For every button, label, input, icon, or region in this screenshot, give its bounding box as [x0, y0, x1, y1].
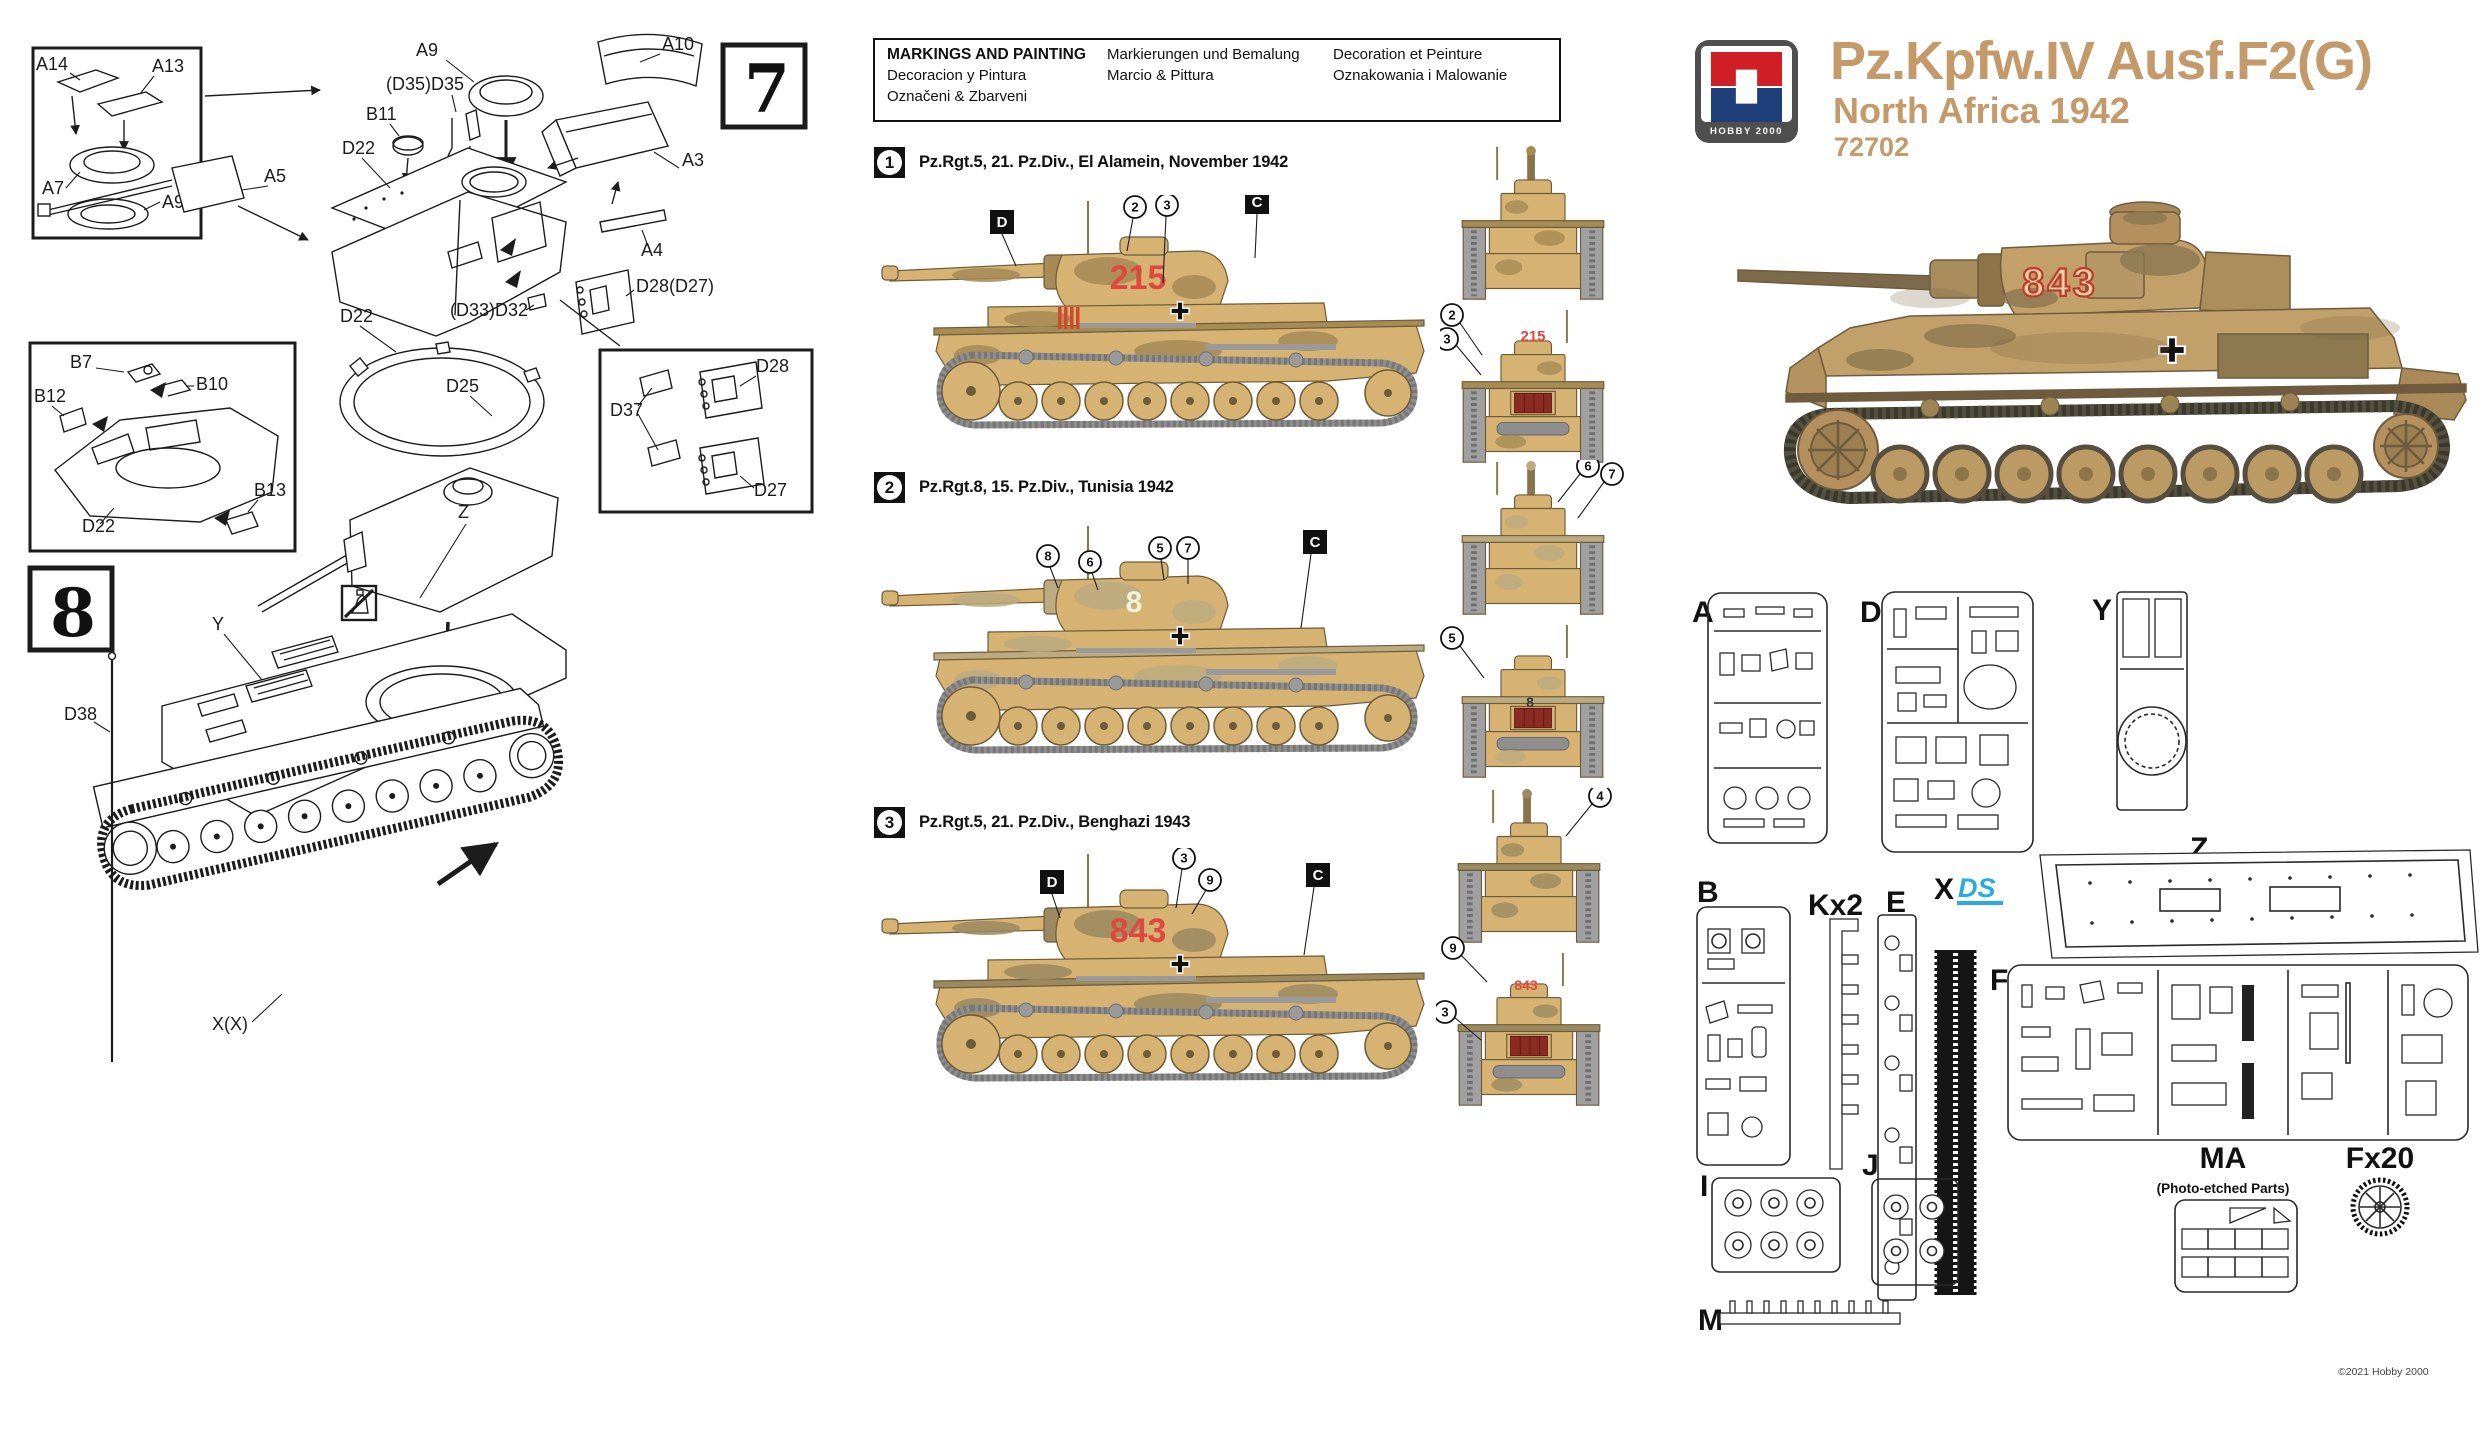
scheme3-callout-c: C — [1304, 863, 1330, 955]
svg-text:7: 7 — [1184, 541, 1191, 556]
part-label-d22-roof: D22 — [342, 138, 375, 158]
sprue-label-m: M — [1698, 1304, 1723, 1337]
part-label-a9: A9 — [416, 40, 438, 60]
step7-number-text: 7 — [744, 50, 790, 128]
svg-text:D: D — [1047, 874, 1058, 891]
part-label-d35: (D35)D35 — [386, 74, 464, 94]
svg-text:5: 5 — [1156, 541, 1163, 556]
hobby2000-logo: HOBBY 2000 — [1695, 40, 1798, 143]
svg-text:9: 9 — [1449, 941, 1456, 956]
scheme3-rear-callout-9: 9 — [1442, 937, 1487, 982]
sprue-d — [1882, 592, 2033, 852]
markings-title-es: Decoracion y Pintura — [887, 67, 1026, 84]
sprue-label-d: D — [1860, 596, 1882, 629]
part-label-d28: D28 — [756, 356, 789, 376]
part-label-a14: A14 — [36, 54, 68, 74]
runner-m — [1720, 1301, 1900, 1324]
step7-hatch-inset: D37 D28 D27 — [600, 350, 812, 512]
scheme1-front-rear-views: 2 3 215 — [1440, 145, 1630, 470]
part-label-a10: A10 — [662, 34, 694, 54]
markings-header-box: MARKINGS AND PAINTING Decoracion y Pintu… — [873, 38, 1561, 122]
scheme3-turret-number: 843 — [1110, 912, 1167, 950]
sprue-label-k: Kx2 — [1808, 889, 1863, 922]
part-label-d25: D25 — [446, 376, 479, 396]
sprue-label-f: F — [1990, 964, 2008, 997]
color-profile-illustration: 843 — [1730, 168, 2481, 526]
instruction-sheet: 7 A14 A13 A7 A9 — [0, 0, 2481, 1447]
scheme1-rear-callout-3: 3 — [1440, 328, 1481, 375]
track-runs-x — [1937, 950, 1974, 1295]
scheme1-callout-c: C — [1245, 195, 1269, 258]
profile-turret-number: 843 — [2022, 261, 2098, 305]
sprue-label-ma-note: (Photo-etched Parts) — [2157, 1181, 2290, 1196]
step8-number: 8 — [30, 568, 112, 652]
sprue-label-i: I — [1700, 1170, 1708, 1203]
part-label-b11: B11 — [366, 104, 397, 124]
sprue-label-ma: MA — [2200, 1142, 2247, 1175]
scheme3-front-callout-4: 4 — [1566, 788, 1611, 836]
svg-text:3: 3 — [1180, 851, 1187, 866]
part-label-a5: A5 — [264, 166, 286, 186]
svg-text:8: 8 — [1044, 549, 1051, 564]
scheme3-rear-callout-3: 3 — [1436, 1001, 1481, 1040]
svg-text:3: 3 — [1443, 332, 1450, 347]
svg-text:9: 9 — [1206, 873, 1213, 888]
part-label-z: Z — [458, 502, 469, 522]
part-label-a3: A3 — [682, 150, 704, 170]
svg-text:3: 3 — [1441, 1005, 1448, 1020]
sprue-label-j: J — [1862, 1149, 1879, 1182]
svg-text:2: 2 — [1131, 200, 1138, 215]
sprue-map: A D Y B — [1690, 583, 2481, 1347]
svg-text:6: 6 — [1086, 555, 1093, 570]
svg-text:5: 5 — [1448, 631, 1455, 646]
part-label-b12: B12 — [34, 386, 66, 406]
part-label-d37: D37 — [610, 400, 643, 420]
part-label-d22-shell: D22 — [340, 306, 373, 326]
photo-etch-fret — [2175, 1200, 2297, 1292]
scheme2-side-view: 8 8 6 5 7 C — [876, 520, 1436, 770]
markings-title-en: MARKINGS AND PAINTING — [887, 46, 1086, 64]
scheme2-rear-callout-5: 5 — [1441, 627, 1484, 678]
ds-logo: DS — [1958, 873, 1996, 903]
step7-cupola-inset: A14 A13 A7 A9 — [33, 48, 201, 238]
part-label-x: X(X) — [212, 1014, 248, 1034]
part-z — [2040, 850, 2478, 958]
part-label-a7: A7 — [42, 178, 64, 198]
part-label-d33-d32: (D33)D32 — [450, 300, 528, 320]
part-label-y: Y — [212, 614, 224, 634]
sprue-a — [1708, 593, 1827, 843]
part-label-d38: D38 — [64, 704, 97, 724]
part-label-d22-inset: D22 — [82, 516, 115, 536]
markings-title-pl: Oznakowania i Malowanie — [1333, 67, 1507, 84]
sprue-f — [2008, 965, 2468, 1140]
sprue-label-fx20: Fx20 — [2346, 1142, 2414, 1175]
sprue-label-a: A — [1692, 596, 1714, 629]
sprue-label-b: B — [1697, 876, 1719, 909]
scheme1-title: Pz.Rgt.5, 21. Pz.Div., El Alamein, Novem… — [919, 153, 1288, 172]
runner-k — [1830, 919, 1858, 1169]
kit-subtitle: North Africa 1942 — [1833, 90, 2130, 132]
sprue-label-y: Y — [2092, 594, 2112, 627]
svg-text:2: 2 — [1448, 308, 1455, 323]
scheme1-badge: 1 — [874, 147, 905, 178]
svg-text:C: C — [1313, 867, 1324, 884]
part-label-a13: A13 — [152, 56, 184, 76]
part-label-b13: B13 — [254, 480, 286, 500]
logo-h-mark — [1701, 46, 1792, 122]
kit-title: Pz.Kpfw.IV Ausf.F2(G) — [1830, 30, 2372, 92]
step8-assembly: Y D38 Z X(X) — [64, 468, 566, 1062]
scheme1-rear-number: 215 — [1520, 328, 1545, 345]
part-label-b7: B7 — [70, 352, 92, 372]
svg-text:C: C — [1310, 534, 1321, 551]
markings-title-cs: Označeni & Zbarveni — [887, 88, 1027, 105]
scheme2-rear-number: 8 — [1526, 694, 1534, 710]
scheme2-front-callout-6: 6 — [1558, 460, 1599, 502]
step7-lower-turret-inset: B7 B10 B12 B13 D22 — [30, 343, 295, 551]
part-label-d27: D27 — [754, 480, 787, 500]
step7-turret-assembly: A9 (D35)D35 B11 D22 A5 A10 A3 A4 D28(D27… — [38, 34, 714, 352]
scheme3-badge: 3 — [874, 807, 905, 838]
markings-title-de: Markierungen und Bemalung — [1107, 46, 1300, 63]
step8-number-text: 8 — [50, 574, 96, 652]
sprue-b — [1697, 907, 1790, 1165]
sprue-label-e: E — [1886, 886, 1906, 919]
svg-text:C: C — [1252, 195, 1263, 211]
step7-number: 7 — [723, 45, 805, 128]
kit-number: 72702 — [1834, 132, 1909, 163]
fx20-wheel — [2353, 1180, 2407, 1234]
logo-brand-text: HOBBY 2000 — [1701, 126, 1792, 137]
copyright: ©2021 Hobby 2000 — [2338, 1366, 2429, 1378]
scheme3-rear-number: 843 — [1514, 977, 1538, 993]
svg-text:4: 4 — [1596, 789, 1604, 804]
scheme3-front-rear-views: 4 9 843 3 — [1436, 788, 1626, 1113]
svg-text:D: D — [997, 214, 1008, 231]
scheme3-callout-3: 3 — [1173, 848, 1195, 908]
scheme2-badge: 2 — [874, 472, 905, 503]
scheme1-turret-number: 215 — [1110, 259, 1167, 297]
scheme2-callout-c: C — [1301, 530, 1327, 628]
part-y — [2117, 592, 2187, 810]
scheme3-side-view: 843 3 D 9 C — [876, 848, 1436, 1098]
markings-title-fr: Decoration et Peinture — [1333, 46, 1482, 63]
step7-turret-ring: D25 — [340, 342, 544, 456]
scheme2-title: Pz.Rgt.8, 15. Pz.Div., Tunisia 1942 — [919, 478, 1174, 497]
scheme1-callout-d: D — [990, 210, 1016, 266]
markings-title-it: Marcio & Pittura — [1107, 67, 1214, 84]
scheme2-front-rear-views: 6 7 5 8 — [1440, 460, 1630, 785]
sprue-i — [1712, 1178, 1840, 1272]
scheme1-side-view: 215 D 2 3 C — [876, 195, 1436, 445]
svg-text:7: 7 — [1608, 467, 1615, 482]
part-label-d28-d27: D28(D27) — [636, 276, 714, 296]
part-label-b10: B10 — [196, 374, 228, 394]
svg-text:6: 6 — [1584, 460, 1591, 474]
ds-logo-underline — [1957, 901, 2003, 905]
assembly-diagram: 7 A14 A13 A7 A9 — [0, 0, 830, 1130]
svg-text:3: 3 — [1163, 198, 1170, 213]
sprue-label-x: X — [1934, 873, 1954, 906]
no-glue-icon — [342, 586, 376, 620]
scheme3-title: Pz.Rgt.5, 21. Pz.Div., Benghazi 1943 — [919, 813, 1190, 832]
scheme2-turret-number: 8 — [1126, 586, 1143, 619]
part-label-a4: A4 — [641, 240, 663, 260]
